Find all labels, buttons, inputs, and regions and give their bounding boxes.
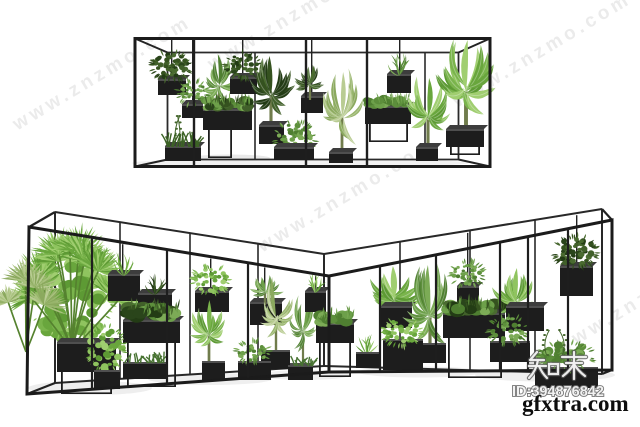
svg-text:gfxtra.com: gfxtra.com: [522, 391, 629, 416]
